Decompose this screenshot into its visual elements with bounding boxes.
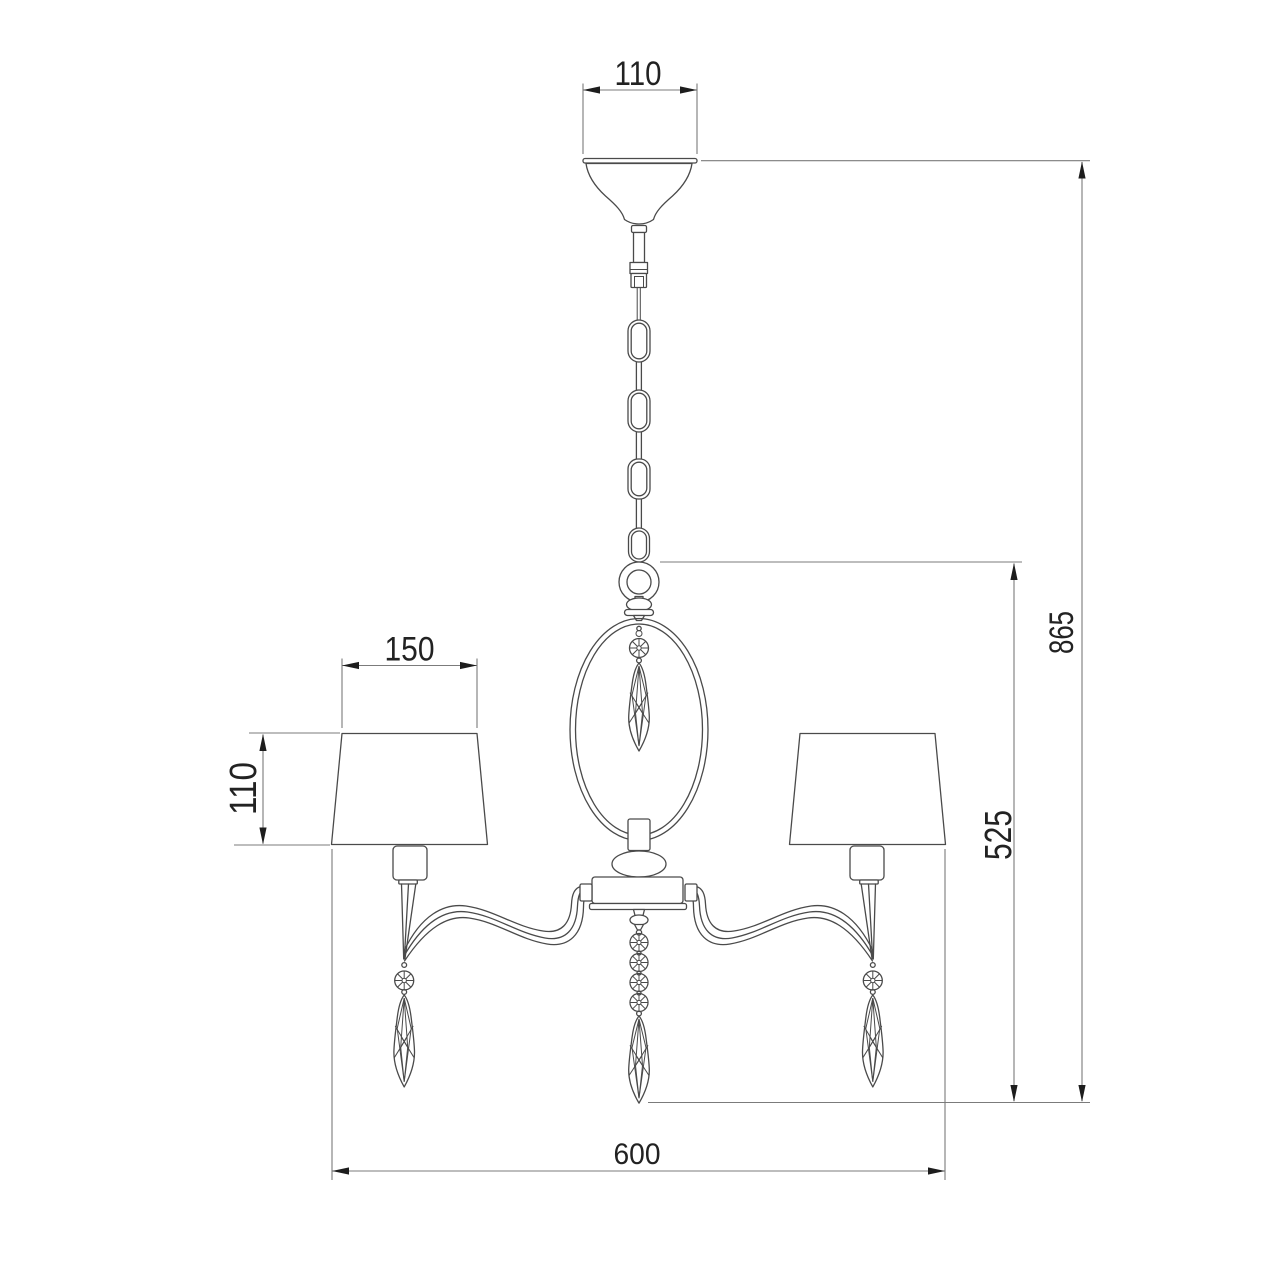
suspension-chain: [628, 288, 650, 563]
dim-overall-height: 865: [648, 161, 1090, 1103]
chandelier-technical-drawing-page: 110 865 525 150 110: [0, 0, 1280, 1280]
dim-shade-width: 150: [342, 631, 477, 729]
shade-height-label: 110: [223, 762, 265, 815]
right-arm-assembly: [685, 734, 946, 1087]
chandelier-technical-drawing: 110 865 525 150 110: [0, 0, 1280, 1280]
body-drop-height-label: 525: [978, 810, 1020, 860]
center-column-hub: [590, 819, 687, 910]
oval-crystal-drop: [629, 626, 650, 751]
dim-shade-height: 110: [223, 733, 340, 845]
center-crystal-chain: [629, 910, 650, 1104]
ring-finial: [625, 597, 654, 621]
fixture-width-label: 600: [614, 1138, 661, 1171]
overall-height-label: 865: [1043, 611, 1081, 654]
dim-canopy-width: 110: [583, 55, 697, 154]
shade-width-label: 150: [385, 631, 435, 669]
left-arm-assembly: [332, 734, 593, 1087]
canopy-width-label: 110: [615, 55, 662, 93]
ceiling-canopy: [583, 159, 697, 288]
